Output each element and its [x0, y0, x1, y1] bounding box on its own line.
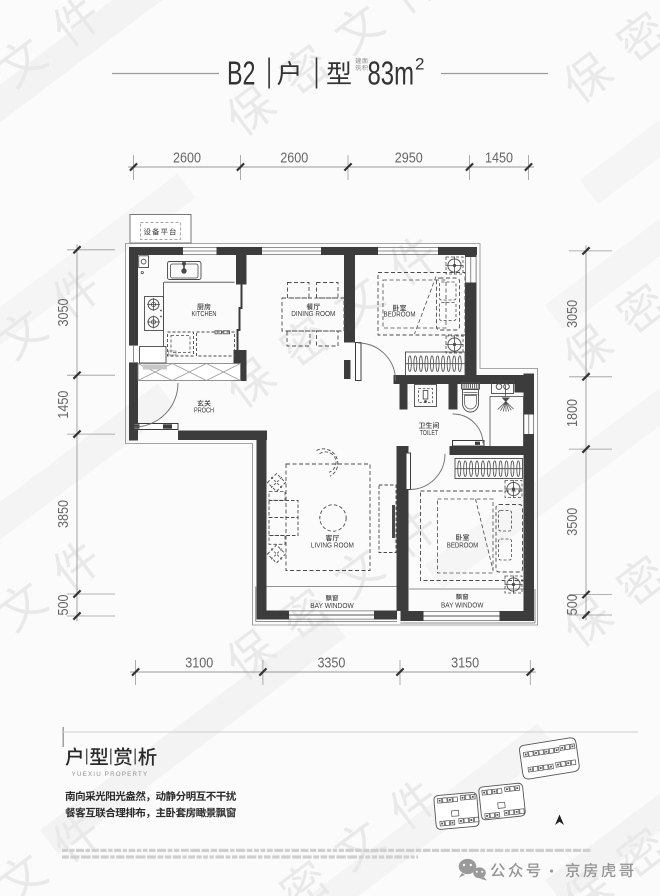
svg-text:2600: 2600	[173, 151, 201, 167]
svg-text:3150: 3150	[451, 656, 479, 672]
svg-text:B2: B2	[227, 55, 256, 92]
svg-text:BEDROOM: BEDROOM	[384, 310, 416, 319]
svg-text:TOILET: TOILET	[420, 428, 439, 437]
svg-text:BAY WINDOW: BAY WINDOW	[310, 601, 354, 610]
svg-text:83m: 83m	[368, 55, 415, 92]
svg-text:1800: 1800	[565, 399, 581, 427]
svg-text:BAY WINDOW: BAY WINDOW	[441, 601, 484, 610]
svg-text:2: 2	[415, 55, 424, 74]
svg-text:1450: 1450	[56, 391, 72, 419]
svg-text:3100: 3100	[185, 656, 213, 672]
svg-text:YUEXIU PROPERTY: YUEXIU PROPERTY	[72, 771, 149, 778]
svg-text:3500: 3500	[565, 508, 581, 536]
svg-text:3050: 3050	[565, 300, 581, 328]
svg-text:500: 500	[565, 594, 581, 615]
svg-text:2600: 2600	[280, 151, 308, 167]
svg-text:1450: 1450	[485, 151, 513, 167]
svg-text:500: 500	[56, 595, 72, 616]
svg-text:2950: 2950	[395, 151, 423, 167]
svg-text:DINING ROOM: DINING ROOM	[291, 309, 335, 318]
svg-text:KITCHEN: KITCHEN	[192, 309, 217, 318]
svg-text:3850: 3850	[56, 500, 72, 528]
svg-text:3350: 3350	[317, 656, 345, 672]
svg-text:3050: 3050	[56, 299, 72, 327]
svg-text:BEDROOM: BEDROOM	[447, 540, 479, 549]
svg-text:LIVING ROOM: LIVING ROOM	[311, 541, 354, 550]
svg-text:PROCH: PROCH	[194, 405, 214, 414]
